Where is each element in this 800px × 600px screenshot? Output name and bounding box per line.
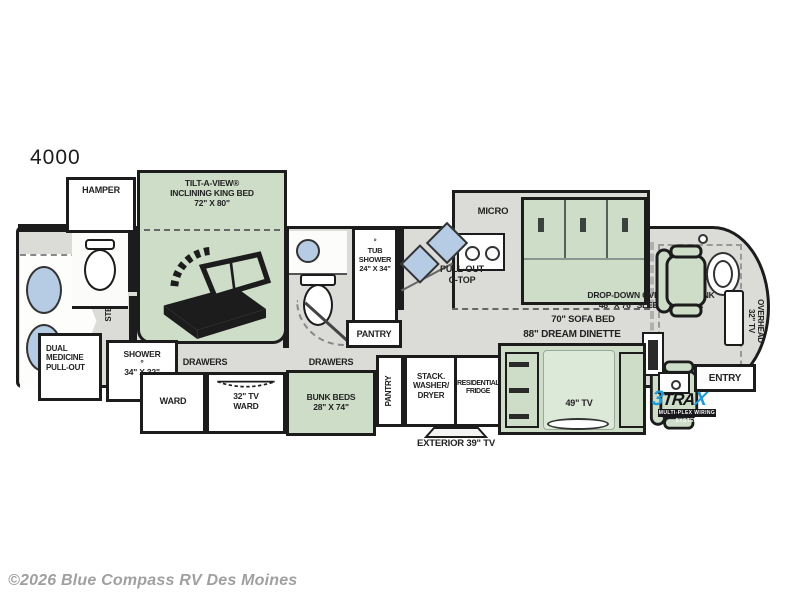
dual-medicine-label: DUAL MEDICINE PULL-OUT (41, 336, 99, 372)
fridge-label: RESIDENTIAL FRIDGE (457, 358, 499, 397)
tv-49-label: 49" TV (541, 398, 617, 409)
pantry-bath-room: PANTRY (346, 320, 402, 348)
trax-logo: 3TRAX MULTI-PLEX WIRING SYSTEM (652, 388, 732, 420)
sofa-bed-label: 70" SOFA BED (516, 314, 650, 325)
dream-dinette-label: 88" DREAM DINETTE (492, 329, 652, 341)
trax-logo-x: X (693, 389, 707, 410)
rear-toilet-area (72, 233, 128, 309)
trax-logo-tra: TRA (662, 390, 696, 409)
pantry-kitchen-label: PANTRY (384, 368, 396, 414)
sofa-seat-divider (606, 200, 608, 260)
tv-arc-icon (214, 379, 278, 391)
bed-icon (156, 235, 272, 339)
sink-icon (296, 239, 320, 263)
residential-fridge: RESIDENTIAL FRIDGE (454, 355, 502, 427)
bath-counter (289, 231, 347, 275)
captain-chair-icon (655, 244, 709, 318)
sofa-seat-divider (564, 200, 566, 260)
sofa-seat-edge (524, 258, 644, 260)
plate-icon (547, 418, 609, 430)
micro-label: MICRO (463, 206, 523, 217)
dinette-bench (619, 352, 645, 428)
pull-out-ctop-label: PULL-OUT C-TOP (418, 264, 506, 285)
overhead-tv-label: OVERHEAD 32" TV (743, 281, 765, 361)
seat-belt-icon (622, 218, 628, 232)
bunk-beds: BUNK BEDS 28" X 74" (286, 370, 376, 436)
dash-vent-icon (698, 234, 708, 244)
washer-dryer: STACK. WASHER/ DRYER (404, 355, 458, 427)
dream-dinette: 49" TV (498, 343, 646, 435)
seat-belt-icon (538, 218, 544, 232)
sofa-bed (521, 197, 647, 305)
hamper-label: HAMPER (69, 180, 133, 196)
copyright-text: ©2026 Blue Compass RV Des Moines (8, 572, 297, 590)
trax-logo-tagline: MULTI-PLEX WIRING SYSTEM (658, 409, 716, 417)
drawers-label: DRAWERS (286, 357, 376, 368)
wall-segment (129, 296, 137, 346)
slide-travel-line (144, 229, 280, 231)
seat-belt-icon (580, 218, 586, 232)
king-bed-slide: TILT-A-VIEW® INCLINING KING BED 72" X 80… (137, 170, 287, 344)
model-number: 4000 (30, 146, 81, 170)
sink-icon (26, 266, 62, 314)
king-bed-label: TILT-A-VIEW® INCLINING KING BED 72" X 80… (140, 173, 284, 208)
tub-shower-label: ° TUB SHOWER 24" X 34" (355, 230, 395, 273)
rv-floorplan: 4000 STEP-UP HAMPER TILT-A-VIEW® INCLINI… (0, 0, 800, 600)
bunk-beds-label: BUNK BEDS 28" X 74" (289, 373, 373, 412)
exterior-tv-icon (424, 427, 488, 438)
toilet-icon (84, 249, 116, 291)
tub-shower-room: ° TUB SHOWER 24" X 34" (352, 227, 398, 323)
washer-dryer-label: STACK. WASHER/ DRYER (407, 358, 455, 400)
ward-cabinet: WARD (140, 372, 206, 434)
tv-ward-label: 32" TV WARD (209, 391, 283, 411)
entry-label: ENTRY (697, 367, 753, 385)
wall-segment (18, 224, 68, 232)
overhead-tv-icon (724, 290, 744, 346)
pantry-bath-label: PANTRY (349, 323, 399, 340)
tv-ward-cabinet: 32" TV WARD (206, 372, 286, 434)
dinette-bench (505, 352, 539, 428)
hamper-slide: HAMPER (66, 177, 136, 233)
exterior-tv-label: EXTERIOR 39" TV (380, 438, 532, 449)
ward-label: WARD (143, 375, 203, 407)
dual-medicine-cabinet: DUAL MEDICINE PULL-OUT (38, 333, 102, 401)
drawers-label: DRAWERS (160, 357, 250, 368)
